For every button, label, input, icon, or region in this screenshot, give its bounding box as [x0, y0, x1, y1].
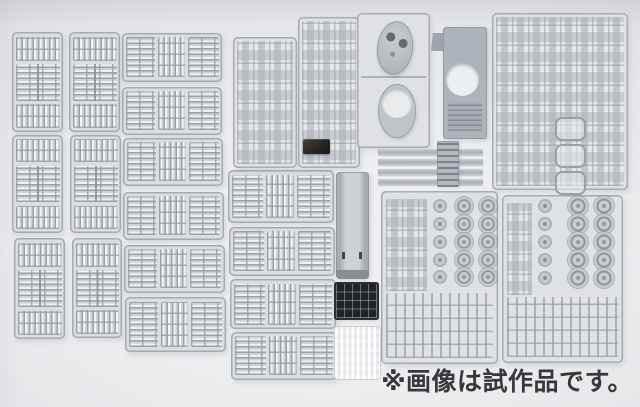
- road-wheel: [455, 251, 473, 269]
- track-link-cluster: [73, 64, 117, 101]
- road-wheel-small: [539, 236, 551, 248]
- track-links-sprue-b2: [70, 135, 121, 233]
- track-links-sprue-c1: [122, 33, 222, 82]
- road-wheel-small: [434, 236, 446, 248]
- product-photo: ※画像は試作品です。: [0, 0, 640, 407]
- road-wheel: [594, 214, 614, 234]
- track-link-cluster: [160, 249, 187, 288]
- track-links-sprue-d1: [228, 170, 334, 223]
- road-wheel: [479, 251, 497, 269]
- track-links-sprue-a1: [12, 32, 63, 132]
- track-link-cluster: [266, 175, 294, 218]
- engine-mesh-grille-part-l1: [336, 284, 377, 318]
- periscope-hole: [390, 51, 396, 57]
- track-link-cluster: [16, 64, 60, 101]
- track-link-cluster: [126, 37, 155, 77]
- track-link-cluster: [16, 37, 60, 61]
- road-wheel: [568, 250, 588, 270]
- road-wheels-sprue-j2: [502, 195, 623, 363]
- clear-parts-sprue-m1: [334, 326, 381, 380]
- road-wheel-small: [539, 272, 551, 284]
- track-link-cluster: [297, 175, 330, 218]
- track-links-sprue-d3: [230, 279, 336, 329]
- grille-plate-part-s5: [437, 141, 459, 187]
- track-link-cluster: [127, 142, 156, 181]
- track-link-cluster: [76, 270, 119, 307]
- track-links-sprue-c3: [123, 138, 223, 186]
- track-link-cluster: [235, 336, 266, 375]
- turret-parts-sprue-f1: [357, 13, 430, 148]
- track-link-cluster: [18, 243, 62, 267]
- road-wheel: [479, 268, 497, 286]
- track-link-cluster: [74, 166, 118, 202]
- track-link-cluster: [16, 206, 60, 229]
- track-link-cluster: [18, 311, 62, 335]
- track-link-cluster: [298, 231, 331, 271]
- small-parts-cluster: [507, 203, 532, 295]
- road-wheel-small: [434, 271, 446, 283]
- track-link-cluster: [234, 284, 265, 325]
- road-wheel-small: [434, 200, 446, 212]
- track-link-cluster: [233, 231, 264, 271]
- road-wheel: [479, 233, 497, 251]
- track-link-cluster: [191, 302, 222, 347]
- track-links-sprue-b3: [72, 238, 122, 338]
- road-wheel: [568, 214, 588, 234]
- engine-deck-grilles: [448, 103, 482, 131]
- track-link-cluster: [161, 302, 188, 347]
- track-links-sprue-d4: [231, 332, 337, 380]
- road-wheel: [455, 268, 473, 286]
- track-link-cluster: [299, 284, 332, 325]
- fender-strip-part-s2: [378, 159, 483, 165]
- track-link-cluster: [18, 270, 62, 307]
- fender-part: [555, 171, 586, 195]
- turret-ring-opening: [382, 88, 412, 118]
- track-links-sprue-d2: [229, 227, 335, 276]
- road-wheel: [568, 232, 588, 252]
- upper-hull-part-g1: [431, 27, 487, 140]
- dark-accessory-part-p1: [303, 139, 330, 154]
- track-link-cluster: [158, 91, 185, 130]
- fender-strip-part-s1: [378, 149, 483, 155]
- track-link-cluster: [127, 196, 156, 235]
- road-wheel-small: [539, 254, 551, 266]
- road-wheel: [479, 197, 497, 215]
- track-links-sprue-c4: [123, 192, 224, 240]
- track-link-cluster: [267, 231, 295, 271]
- turret-shell-part: [378, 84, 416, 138]
- track-link-cluster: [189, 142, 220, 181]
- track-link-cluster: [129, 302, 158, 347]
- track-link-cluster: [268, 284, 296, 325]
- road-wheels-sprue-j1: [381, 191, 498, 364]
- track-link-cluster: [159, 196, 186, 235]
- turret-roof-part: [374, 19, 416, 77]
- lower-hull-tub-part-k1: [336, 172, 369, 279]
- track-links-sprue-a2: [12, 135, 63, 233]
- fender-strip-part-s4: [378, 179, 483, 185]
- road-wheel: [455, 233, 473, 251]
- detail-parts-sprue-e1: [233, 37, 297, 168]
- road-wheel: [568, 196, 588, 216]
- small-parts-cluster: [237, 41, 293, 164]
- track-link-cluster: [126, 91, 155, 130]
- road-wheel: [455, 197, 473, 215]
- road-wheel-small: [434, 218, 446, 230]
- track-link-cluster: [76, 310, 119, 334]
- sprue-runner: [361, 76, 426, 78]
- small-parts-cluster: [386, 199, 427, 291]
- track-links-sprue-c5: [124, 245, 225, 293]
- fender-part: [555, 144, 586, 168]
- track-link-cluster: [74, 206, 118, 229]
- track-link-cluster: [74, 139, 118, 162]
- track-link-cluster: [188, 91, 219, 130]
- track-links-sprue-b1: [69, 32, 120, 132]
- suspension-arms-cluster: [507, 297, 618, 357]
- hatch-opening: [398, 38, 408, 48]
- track-link-cluster: [159, 142, 186, 181]
- track-link-cluster: [269, 336, 297, 375]
- road-wheel: [568, 268, 588, 288]
- track-link-cluster: [190, 249, 221, 288]
- track-links-sprue-c6: [125, 297, 226, 352]
- road-wheel-small: [539, 218, 551, 230]
- fender-part: [555, 117, 586, 141]
- track-link-cluster: [189, 196, 220, 235]
- road-wheel: [594, 232, 614, 252]
- track-link-cluster: [73, 104, 117, 128]
- track-link-cluster: [128, 249, 157, 288]
- track-link-cluster: [300, 336, 333, 375]
- hull-rear-plate: [336, 270, 369, 279]
- track-links-sprue-c2: [122, 87, 222, 135]
- track-link-cluster: [16, 166, 60, 202]
- fender-strip-part-s3: [378, 169, 483, 175]
- road-wheel: [479, 215, 497, 233]
- road-wheel: [594, 196, 614, 216]
- track-link-cluster: [232, 175, 263, 218]
- road-wheel-small: [434, 254, 446, 266]
- turret-ring-hole: [446, 63, 479, 96]
- prototype-note: ※画像は試作品です。: [381, 362, 633, 398]
- road-wheel-small: [539, 200, 551, 212]
- road-wheel: [594, 268, 614, 288]
- track-link-cluster: [16, 104, 60, 128]
- suspension-arms-cluster: [386, 293, 493, 358]
- track-link-cluster: [188, 37, 219, 77]
- hull-slot: [342, 252, 345, 259]
- sprue-scene: [0, 0, 640, 407]
- track-links-sprue-a3: [14, 238, 65, 339]
- detail-parts-sprue-i1: [492, 13, 628, 190]
- hatch-opening: [386, 32, 396, 42]
- track-link-cluster: [158, 37, 185, 77]
- track-link-cluster: [76, 243, 119, 267]
- road-wheel: [455, 215, 473, 233]
- road-wheel: [594, 250, 614, 270]
- track-link-cluster: [16, 139, 60, 162]
- track-link-cluster: [73, 37, 117, 61]
- hull-slot: [359, 252, 362, 259]
